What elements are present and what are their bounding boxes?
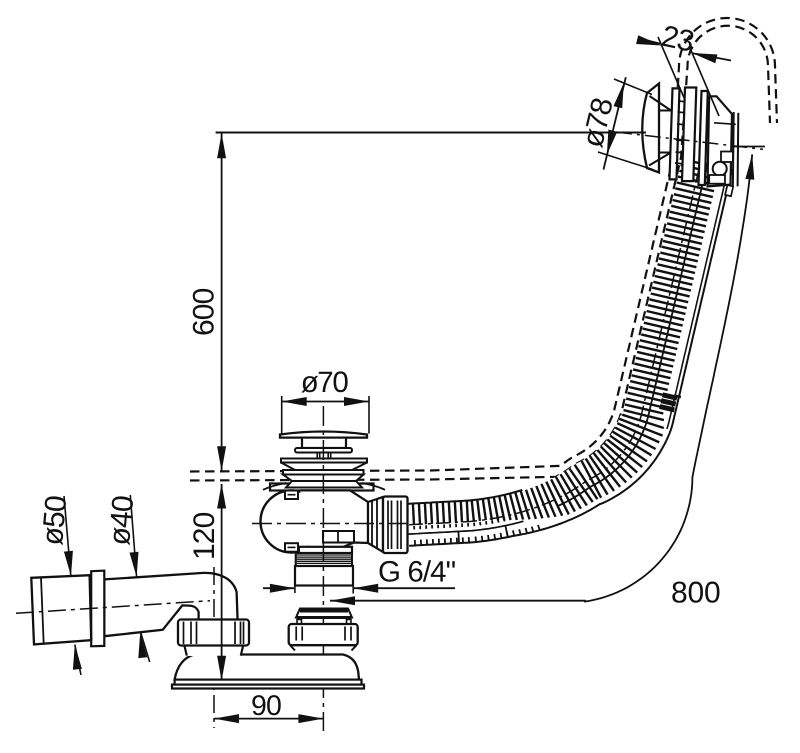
svg-text:800: 800: [671, 577, 720, 610]
svg-text:90: 90: [251, 690, 281, 722]
svg-text:600: 600: [188, 288, 221, 336]
svg-text:120: 120: [188, 512, 221, 560]
svg-text:ø50: ø50: [36, 495, 73, 547]
svg-text:ø40: ø40: [103, 495, 140, 547]
svg-text:ø70: ø70: [301, 366, 349, 399]
svg-text:G 6/4": G 6/4": [378, 556, 456, 589]
